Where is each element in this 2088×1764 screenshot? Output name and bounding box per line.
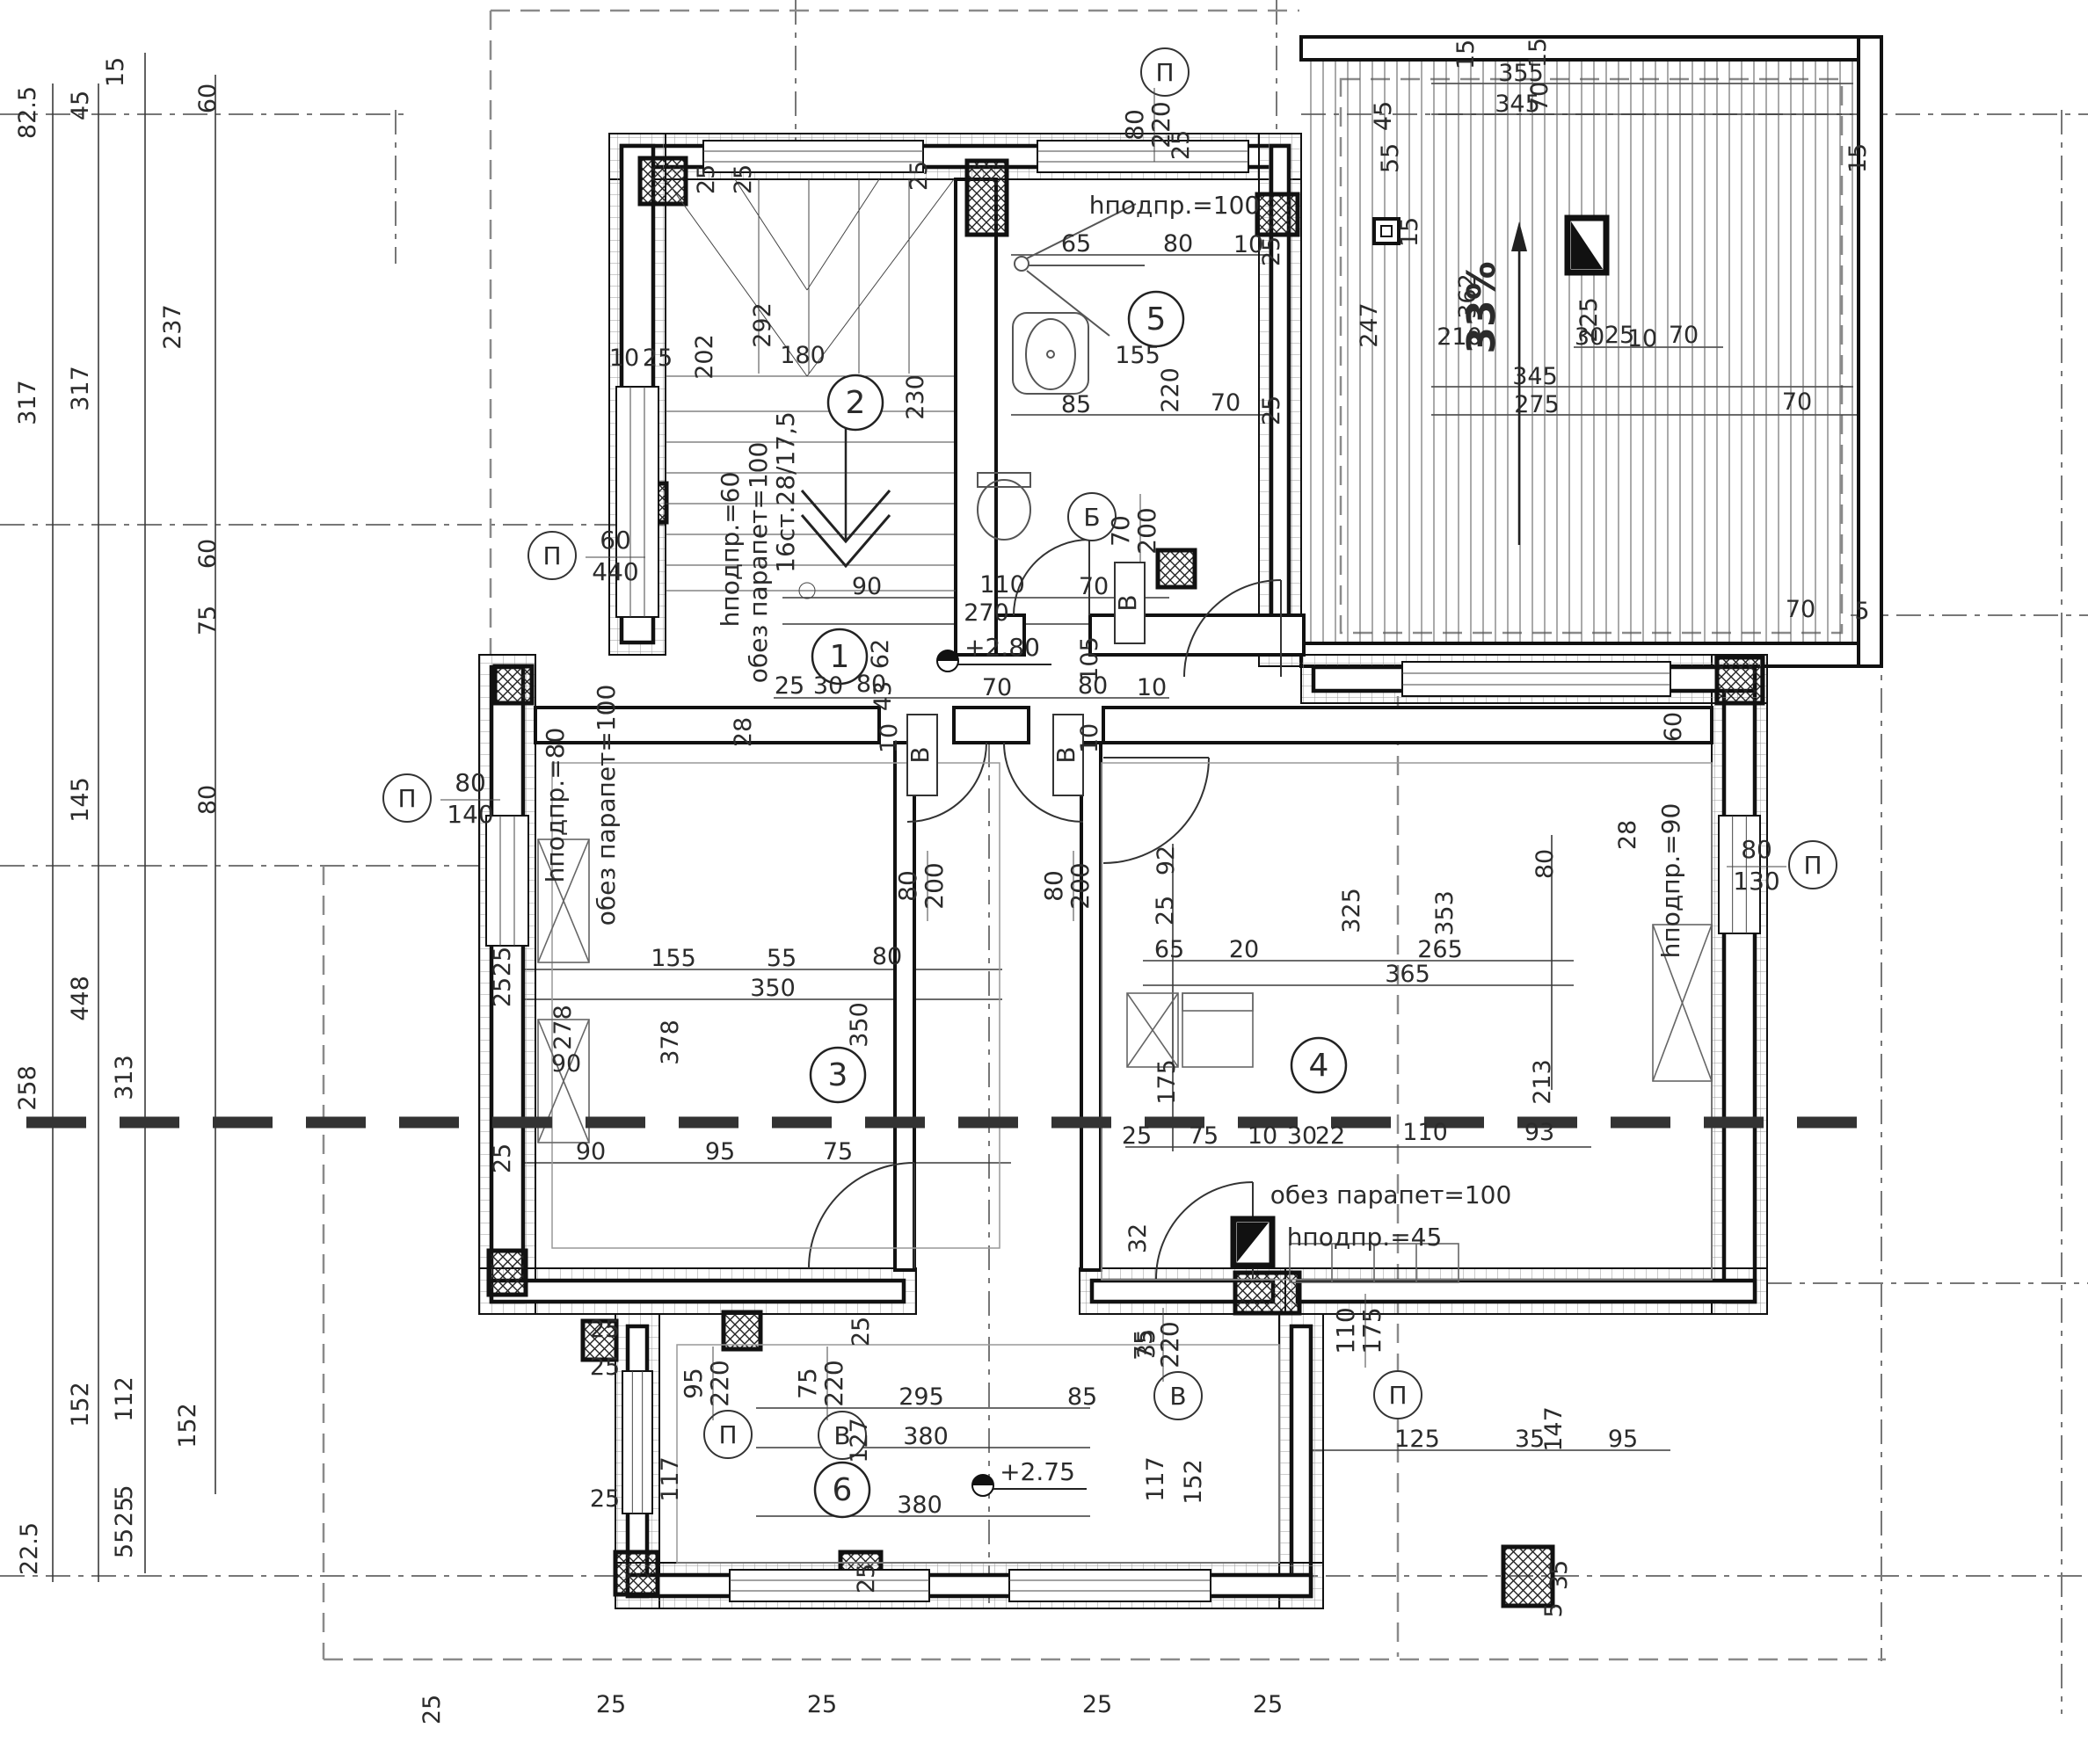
annotation: обез парапет=100 <box>744 442 773 684</box>
dim-label: 25 <box>111 1497 138 1527</box>
dim-label: 10 <box>609 345 639 372</box>
dim-label: 265 <box>1417 936 1463 963</box>
drain-icon <box>1374 219 1399 243</box>
annotation: обез парапет=100 <box>1270 1180 1512 1209</box>
dim-label: 15 <box>1844 143 1872 173</box>
opening-mark-letter: П <box>1803 851 1822 880</box>
opening-size: 220 <box>705 1360 734 1406</box>
dim-label: 15 <box>1524 38 1552 68</box>
dim-label: 25 <box>1122 1122 1152 1150</box>
window <box>730 1570 929 1601</box>
dim-label: 28 <box>1614 820 1641 850</box>
opening-size: 80 <box>455 768 486 797</box>
dim-label: 28 <box>730 717 757 747</box>
wall-core <box>1298 1281 1755 1302</box>
dim-label: 70 <box>1526 82 1553 112</box>
dim-label: 213 <box>1529 1059 1556 1105</box>
dim-label: 278 <box>549 1005 577 1050</box>
wardrobe-icon <box>538 839 589 1143</box>
dim-label: 70 <box>982 674 1012 701</box>
dim-label: 317 <box>14 380 41 425</box>
dim-label: 110 <box>979 571 1025 599</box>
dim-label: 80 <box>1078 672 1108 700</box>
dim-label: 10 <box>1248 1122 1277 1150</box>
annotation: hподпр.=45 <box>1287 1223 1443 1252</box>
dim-label: 25 <box>693 164 720 194</box>
dim-label: 55 <box>1377 143 1404 173</box>
dim-label: 175 <box>1153 1059 1181 1105</box>
room-number: 1 <box>830 639 850 675</box>
annotation: обез парапет=100 <box>592 685 621 926</box>
column <box>640 158 686 204</box>
dim-label: 10 <box>876 723 903 753</box>
opening-mark-letter: В <box>1169 1382 1186 1411</box>
dim-label: 155 <box>1115 342 1160 369</box>
dim-label: 85 <box>1067 1383 1097 1411</box>
opening-size: 110 <box>1331 1307 1360 1354</box>
opening-size: 80 <box>1741 835 1772 864</box>
door-size: 200 <box>920 862 949 909</box>
opening-mark-letter: П <box>1155 58 1174 87</box>
dim-label: 55 <box>111 1528 138 1558</box>
dim-label: 448 <box>67 976 94 1021</box>
level-value: +2.75 <box>1000 1457 1075 1486</box>
dim-label: 110 <box>1402 1119 1448 1146</box>
dim-label: 275 <box>1514 391 1560 418</box>
dim-label: 60 <box>194 539 222 569</box>
dim-label: 25 <box>489 977 516 1007</box>
room-number: 5 <box>1146 301 1167 338</box>
dim-label: 30 <box>1575 323 1604 351</box>
window <box>1402 662 1670 696</box>
dim-label: 80 <box>194 785 222 815</box>
dim-label: 80 <box>872 943 902 970</box>
dim-label: 25 <box>590 1354 620 1381</box>
floor-plan-svg: П60440П80140П80130П80220П110175П95220В75… <box>0 0 2088 1764</box>
dim-label: 5 <box>1854 598 1869 625</box>
dim-label: 70 <box>1786 596 1815 623</box>
dim-label: 25 <box>489 947 516 976</box>
level-value: +2.80 <box>964 633 1040 662</box>
opening-size: 60 <box>600 526 631 555</box>
dim-label: 15 <box>1452 40 1480 69</box>
dim-label: 25 <box>596 1691 626 1718</box>
dim-label: 25 <box>1168 130 1195 160</box>
dim-label: 25 <box>489 1143 516 1173</box>
opening-size: 80 <box>1120 109 1149 141</box>
dim-label: 345 <box>1512 363 1558 390</box>
opening-mark-letter: П <box>542 541 561 570</box>
dim-label: 65 <box>1154 936 1184 963</box>
dim-label: 353 <box>1431 890 1459 936</box>
window <box>1037 141 1248 172</box>
dim-label: 25 <box>730 164 757 194</box>
dim-label: 22 <box>1315 1122 1345 1150</box>
sink-icon <box>1026 319 1075 389</box>
dim-label: 25 <box>1253 1691 1283 1718</box>
dim-label: 25 <box>853 1564 880 1593</box>
room-number: 4 <box>1309 1048 1329 1084</box>
dim-label: 25 <box>775 672 804 700</box>
dim-label: 145 <box>67 777 94 823</box>
dim-label: 117 <box>657 1456 684 1502</box>
dim-label: 45 <box>1370 101 1397 131</box>
dim-label: 75 <box>1189 1122 1219 1150</box>
partition-wall <box>1103 708 1712 743</box>
dim-label: 10 <box>1627 325 1657 352</box>
dim-label: 112 <box>111 1376 138 1422</box>
column <box>1257 194 1298 235</box>
dim-label: 60 <box>194 83 222 113</box>
window <box>486 816 528 946</box>
chimney-icon <box>1233 1219 1272 1266</box>
opening-mark-letter: Б <box>1083 503 1100 532</box>
dim-label: 92 <box>1153 846 1180 875</box>
opening-size: 75 <box>793 1368 822 1399</box>
dim-label: 95 <box>1608 1426 1638 1453</box>
opening-size: 220 <box>819 1360 848 1406</box>
dim-label: 43 <box>869 681 897 711</box>
room-number: 3 <box>828 1057 848 1093</box>
bed-icon <box>1182 993 1253 1067</box>
dim-label: 32 <box>1124 1223 1152 1253</box>
dim-label: 325 <box>1338 888 1365 933</box>
dim-label: 90 <box>852 573 882 600</box>
door-size: 80 <box>893 870 922 902</box>
dim-label: 25 <box>1152 896 1179 926</box>
dim-label: 350 <box>750 975 796 1002</box>
opening-size: 70 <box>1106 515 1135 547</box>
column <box>967 161 1007 235</box>
dim-label: 25 <box>590 1485 620 1513</box>
dim-label: 230 <box>902 374 929 420</box>
dim-label: 5 <box>1540 1602 1568 1617</box>
column <box>489 1251 526 1295</box>
window <box>1009 1570 1211 1601</box>
opening-size: 130 <box>1733 867 1779 896</box>
dim-label: 365 <box>1385 961 1430 988</box>
dim-label: 237 <box>159 304 186 350</box>
dim-label: 62 <box>867 639 894 669</box>
dim-label: 152 <box>67 1382 94 1427</box>
dim-label: 45 <box>67 91 94 120</box>
dim-label: 55 <box>767 945 797 972</box>
dim-label: 70 <box>1211 389 1240 417</box>
opening-size: 175 <box>1357 1307 1386 1354</box>
annotation: hподпр.=90 <box>1656 803 1685 959</box>
column <box>1158 550 1195 587</box>
dim-label: 70 <box>1782 388 1812 416</box>
dim-label: 70 <box>1669 322 1699 349</box>
dim-label: 25 <box>1082 1691 1112 1718</box>
annotation: hподпр.=60 <box>716 472 745 628</box>
dim-label: 22.5 <box>16 1522 43 1575</box>
column <box>724 1312 760 1349</box>
dim-label: 75 <box>194 606 222 635</box>
dim-label: 25 <box>848 1317 875 1347</box>
dim-label: 75 <box>823 1138 853 1165</box>
dim-label: 25 <box>643 345 673 372</box>
dim-label: 25 <box>807 1691 837 1718</box>
dim-label: 125 <box>1394 1426 1440 1453</box>
column <box>1717 657 1763 703</box>
room-number: 2 <box>846 385 866 421</box>
dim-label: 380 <box>903 1423 949 1450</box>
annotation: 16ст.28/17,5 <box>771 411 800 573</box>
annotation: 33% <box>1459 261 1504 353</box>
dim-label: 80 <box>1531 849 1559 879</box>
dim-label: 25 <box>1258 396 1285 425</box>
dim-label: 35 <box>1546 1560 1573 1590</box>
wall-core <box>1291 1326 1311 1596</box>
dim-label: 70 <box>1079 573 1109 600</box>
dim-label: 35 <box>1133 1329 1160 1359</box>
dim-label: 247 <box>1356 302 1383 348</box>
dim-label: 152 <box>1180 1459 1207 1505</box>
column <box>615 1552 658 1594</box>
opening-size: 140 <box>447 800 493 829</box>
dim-label: 95 <box>705 1138 735 1165</box>
window <box>622 1371 652 1514</box>
wall-core <box>491 1281 904 1302</box>
dim-label: 147 <box>1540 1406 1568 1452</box>
dim-label: 65 <box>1061 230 1091 258</box>
dim-label: 378 <box>657 1020 684 1065</box>
dim-label: 295 <box>898 1383 944 1411</box>
dim-label: 80 <box>1163 230 1193 258</box>
room-number: 6 <box>833 1472 853 1508</box>
dim-label: 380 <box>897 1492 942 1519</box>
floor-plan: П60440П80140П80130П80220П110175П95220В75… <box>0 0 2088 1764</box>
door-size: 80 <box>1039 870 1068 902</box>
door-leaf-letter: В <box>906 746 935 763</box>
dim-label: 25 <box>418 1695 446 1724</box>
dim-label: 313 <box>111 1055 138 1100</box>
shower-icon <box>1015 204 1145 336</box>
dim-label: 82.5 <box>14 86 41 139</box>
dim-label: 180 <box>780 342 826 369</box>
chimney-icon <box>1568 218 1606 272</box>
annotation: hподпр.=80 <box>541 728 570 883</box>
dim-label: 25 <box>1258 236 1285 266</box>
level-symbol-fill <box>972 1475 993 1485</box>
partition-wall <box>535 708 879 743</box>
opening-mark-letter: П <box>718 1420 737 1449</box>
dim-label: 127 <box>846 1418 873 1463</box>
dim-label: 10 <box>1076 723 1103 753</box>
dim-label: 220 <box>1157 367 1184 413</box>
wall-core <box>1724 667 1755 1302</box>
dim-label: 90 <box>576 1138 606 1165</box>
column <box>495 666 532 703</box>
dim-label: 25 <box>590 1316 620 1343</box>
opening-size: 95 <box>679 1368 708 1399</box>
dim-label: 10 <box>1137 674 1167 701</box>
dim-label: 258 <box>14 1065 41 1111</box>
dim-label: 15 <box>1396 217 1423 247</box>
dim-label: 155 <box>651 945 696 972</box>
opening-mark-letter: П <box>1388 1381 1407 1410</box>
dim-label: 152 <box>174 1403 201 1448</box>
door-leaf-letter: В <box>1113 594 1142 611</box>
dim-label: 317 <box>67 366 94 411</box>
dim-label: 85 <box>1061 391 1091 418</box>
dim-label: 270 <box>964 599 1009 627</box>
dim-label: 90 <box>551 1050 581 1078</box>
partition-wall <box>954 708 1029 743</box>
dim-label: 202 <box>691 334 718 380</box>
dim-label: 15 <box>102 57 129 87</box>
opening-size: 200 <box>1132 507 1161 554</box>
dim-label: 20 <box>1229 936 1259 963</box>
dim-label: 25 <box>906 161 933 191</box>
dim-label: 60 <box>1660 712 1687 742</box>
annotation: hподпр.=100 <box>1089 191 1260 220</box>
dim-label: 292 <box>749 302 776 348</box>
dim-label: 117 <box>1142 1456 1169 1502</box>
partition-wall <box>1081 743 1101 1270</box>
dim-label: 93 <box>1524 1119 1554 1146</box>
dim-label: 30 <box>1287 1122 1317 1150</box>
opening-mark-letter: П <box>397 784 416 813</box>
dim-label: 5 <box>111 1485 138 1499</box>
dim-label: 350 <box>846 1002 873 1048</box>
door-size: 200 <box>1066 862 1095 909</box>
dim-label: 30 <box>813 672 843 700</box>
opening-size: 440 <box>592 557 638 586</box>
